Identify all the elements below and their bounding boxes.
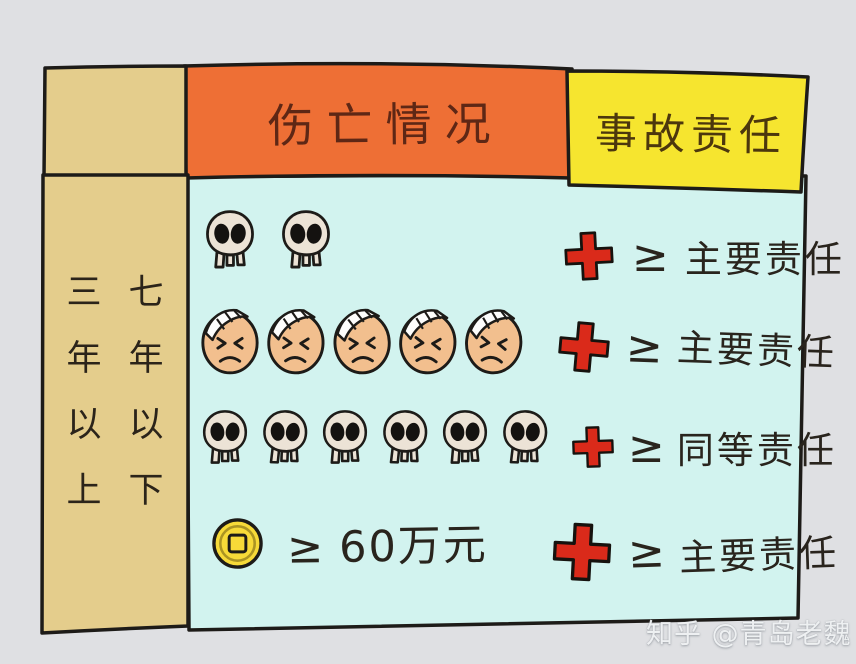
coin-icon: [210, 516, 265, 571]
red-cross-icon: [560, 223, 617, 290]
row2-injury-icons: [198, 304, 526, 376]
row4-coin-icon-wrap: [210, 516, 265, 571]
duration-text-min: 三年以上: [64, 260, 104, 628]
accident-liability-infographic: 伤亡情况 事故责任 三年以上 七年以下 ≥ 主要: [0, 0, 856, 664]
duration-column: 三年以上 七年以下: [42, 176, 188, 628]
row3-death-icons: [201, 409, 549, 468]
injured-face-icon: [198, 304, 262, 376]
injured-face-icon: [329, 303, 395, 377]
skull-icon: [500, 408, 550, 469]
skull-icon: [280, 209, 332, 273]
header-responsibility-label: 事故责任: [589, 100, 788, 164]
header-responsibility: 事故责任: [568, 71, 808, 191]
row1-responsibility-label: 主要责任: [685, 229, 845, 283]
row4-amount-value: 60万元: [339, 520, 489, 573]
injured-face-icon: [394, 302, 463, 378]
skull-icon: [441, 409, 489, 468]
row2-responsibility-label: 主要责任: [676, 317, 838, 377]
header-casualty-label: 伤亡情况: [254, 88, 504, 157]
injured-face-icon: [458, 301, 529, 379]
skull-icon: [321, 409, 369, 468]
row4-property-damage: ≥60万元: [210, 512, 488, 574]
row1-death-icons: [204, 209, 332, 273]
row2-responsibility: ≥ 主要责任: [556, 314, 837, 380]
skull-icon: [380, 408, 430, 469]
row4-amount-operator: ≥: [287, 523, 326, 574]
red-cross-icon: [548, 510, 616, 593]
watermark: 知乎 @青岛老魏: [646, 612, 852, 651]
cell-corner-bg: [44, 66, 186, 177]
duration-text-max: 七年以下: [126, 260, 166, 628]
row4-operator: ≥: [627, 526, 666, 578]
row3-responsibility-label: 同等责任: [677, 420, 837, 474]
row2-operator: ≥: [625, 321, 664, 373]
red-cross-icon: [553, 312, 615, 383]
skull-icon: [260, 408, 310, 469]
row4-amount: ≥60万元: [286, 510, 488, 575]
row4-responsibility-label: 主要责任: [678, 522, 840, 582]
row1-responsibility: ≥ 主要责任: [562, 224, 845, 288]
skull-icon: [201, 409, 249, 468]
row3-responsibility: ≥ 同等责任: [570, 418, 837, 476]
red-cross-icon: [569, 418, 617, 476]
injured-face-icon: [263, 303, 329, 377]
skull-icon: [204, 209, 256, 273]
row4-responsibility: ≥ 主要责任: [550, 510, 839, 594]
row1-operator: ≥: [632, 231, 669, 282]
row3-operator: ≥: [628, 422, 665, 473]
header-casualty: 伤亡情况: [185, 64, 572, 180]
